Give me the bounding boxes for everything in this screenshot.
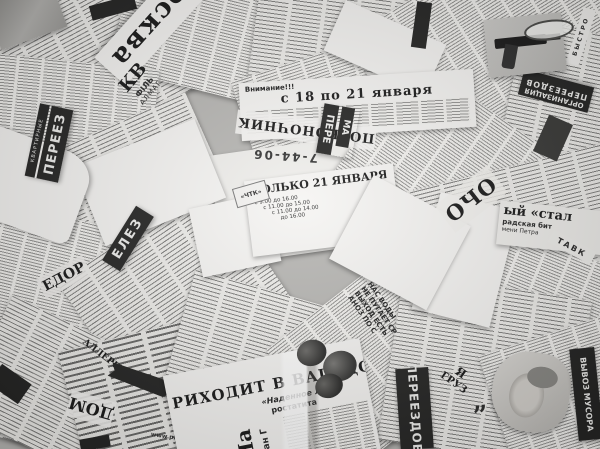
banner-pereezdov: ПЕРЕЕЗДОВ xyxy=(395,367,434,449)
banner-vyvoz-text: ВЫВОЗ МУСОРА xyxy=(578,356,595,431)
banner-ma-text: МА xyxy=(335,106,355,148)
chtk-text: «ЧТК» xyxy=(240,188,263,201)
banner-pereezdov-text: ПЕРЕЕЗДОВ xyxy=(404,363,424,449)
vertical-ls: лс xyxy=(208,430,230,449)
quote-mark-glyph: ” xyxy=(472,400,491,432)
vertical-roman: Роман Г xyxy=(256,413,277,449)
quote-mark: ” xyxy=(464,400,498,432)
newspaper-collage-photo: осква КВ ФІЛЬ АЛМАГ КВАРТИРНЫЕ ПЕРЕЕЗ Вн… xyxy=(0,0,600,449)
